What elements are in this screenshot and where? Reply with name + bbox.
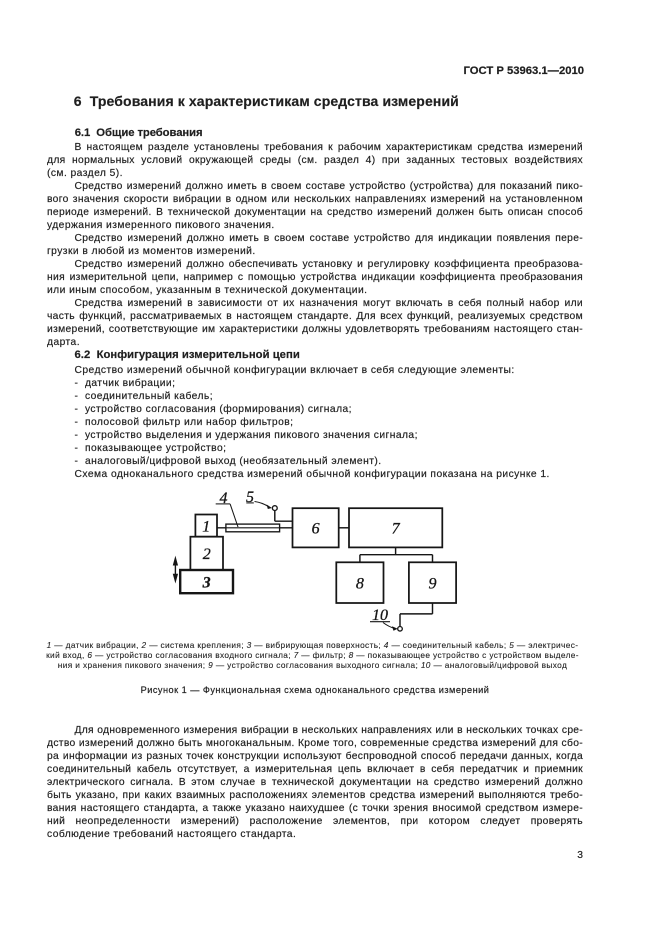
svg-text:10: 10 [372, 607, 388, 624]
svg-text:9: 9 [429, 575, 437, 592]
svg-text:6: 6 [312, 520, 320, 537]
svg-text:5: 5 [246, 489, 254, 506]
svg-text:1: 1 [202, 518, 210, 535]
svg-text:2: 2 [203, 546, 211, 563]
svg-text:3: 3 [202, 574, 211, 591]
svg-text:8: 8 [356, 575, 364, 592]
svg-text:7: 7 [392, 520, 401, 537]
svg-text:4: 4 [220, 490, 228, 507]
